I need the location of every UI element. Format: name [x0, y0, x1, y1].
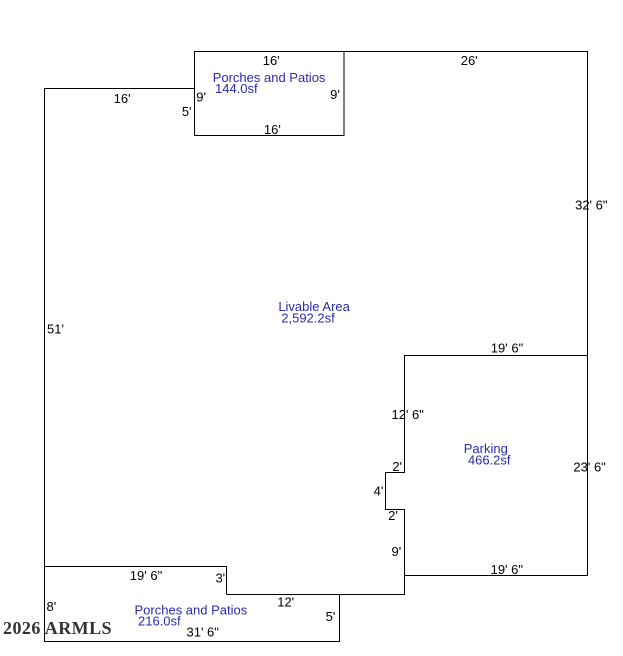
svg-text:466.2sf: 466.2sf [468, 453, 511, 468]
svg-text:16': 16' [114, 91, 131, 106]
svg-text:144.0sf: 144.0sf [215, 81, 258, 96]
svg-text:2': 2' [388, 508, 398, 523]
svg-text:16': 16' [264, 122, 281, 137]
svg-text:4': 4' [374, 484, 384, 499]
svg-text:16': 16' [263, 53, 280, 68]
svg-text:26': 26' [461, 53, 478, 68]
svg-text:31' 6": 31' 6" [186, 624, 219, 639]
svg-text:12' 6": 12' 6" [391, 407, 424, 422]
svg-text:9': 9' [392, 544, 402, 559]
svg-text:5': 5' [326, 609, 336, 624]
svg-text:19' 6": 19' 6" [491, 562, 524, 577]
svg-text:9': 9' [196, 89, 206, 104]
svg-text:3': 3' [215, 571, 225, 586]
svg-text:2,592.2sf: 2,592.2sf [281, 310, 335, 325]
svg-text:23' 6": 23' 6" [573, 459, 606, 474]
svg-text:19' 6": 19' 6" [130, 568, 163, 583]
svg-text:216.0sf: 216.0sf [138, 613, 181, 628]
svg-text:51': 51' [47, 321, 64, 336]
svg-text:32' 6": 32' 6" [575, 198, 608, 213]
svg-text:12': 12' [277, 594, 294, 609]
svg-text:2': 2' [392, 459, 402, 474]
svg-text:5': 5' [182, 104, 192, 119]
svg-text:19' 6": 19' 6" [491, 340, 524, 355]
svg-text:9': 9' [330, 87, 340, 102]
svg-text:2026 ARMLS: 2026 ARMLS [3, 618, 112, 638]
svg-text:8': 8' [47, 599, 57, 614]
